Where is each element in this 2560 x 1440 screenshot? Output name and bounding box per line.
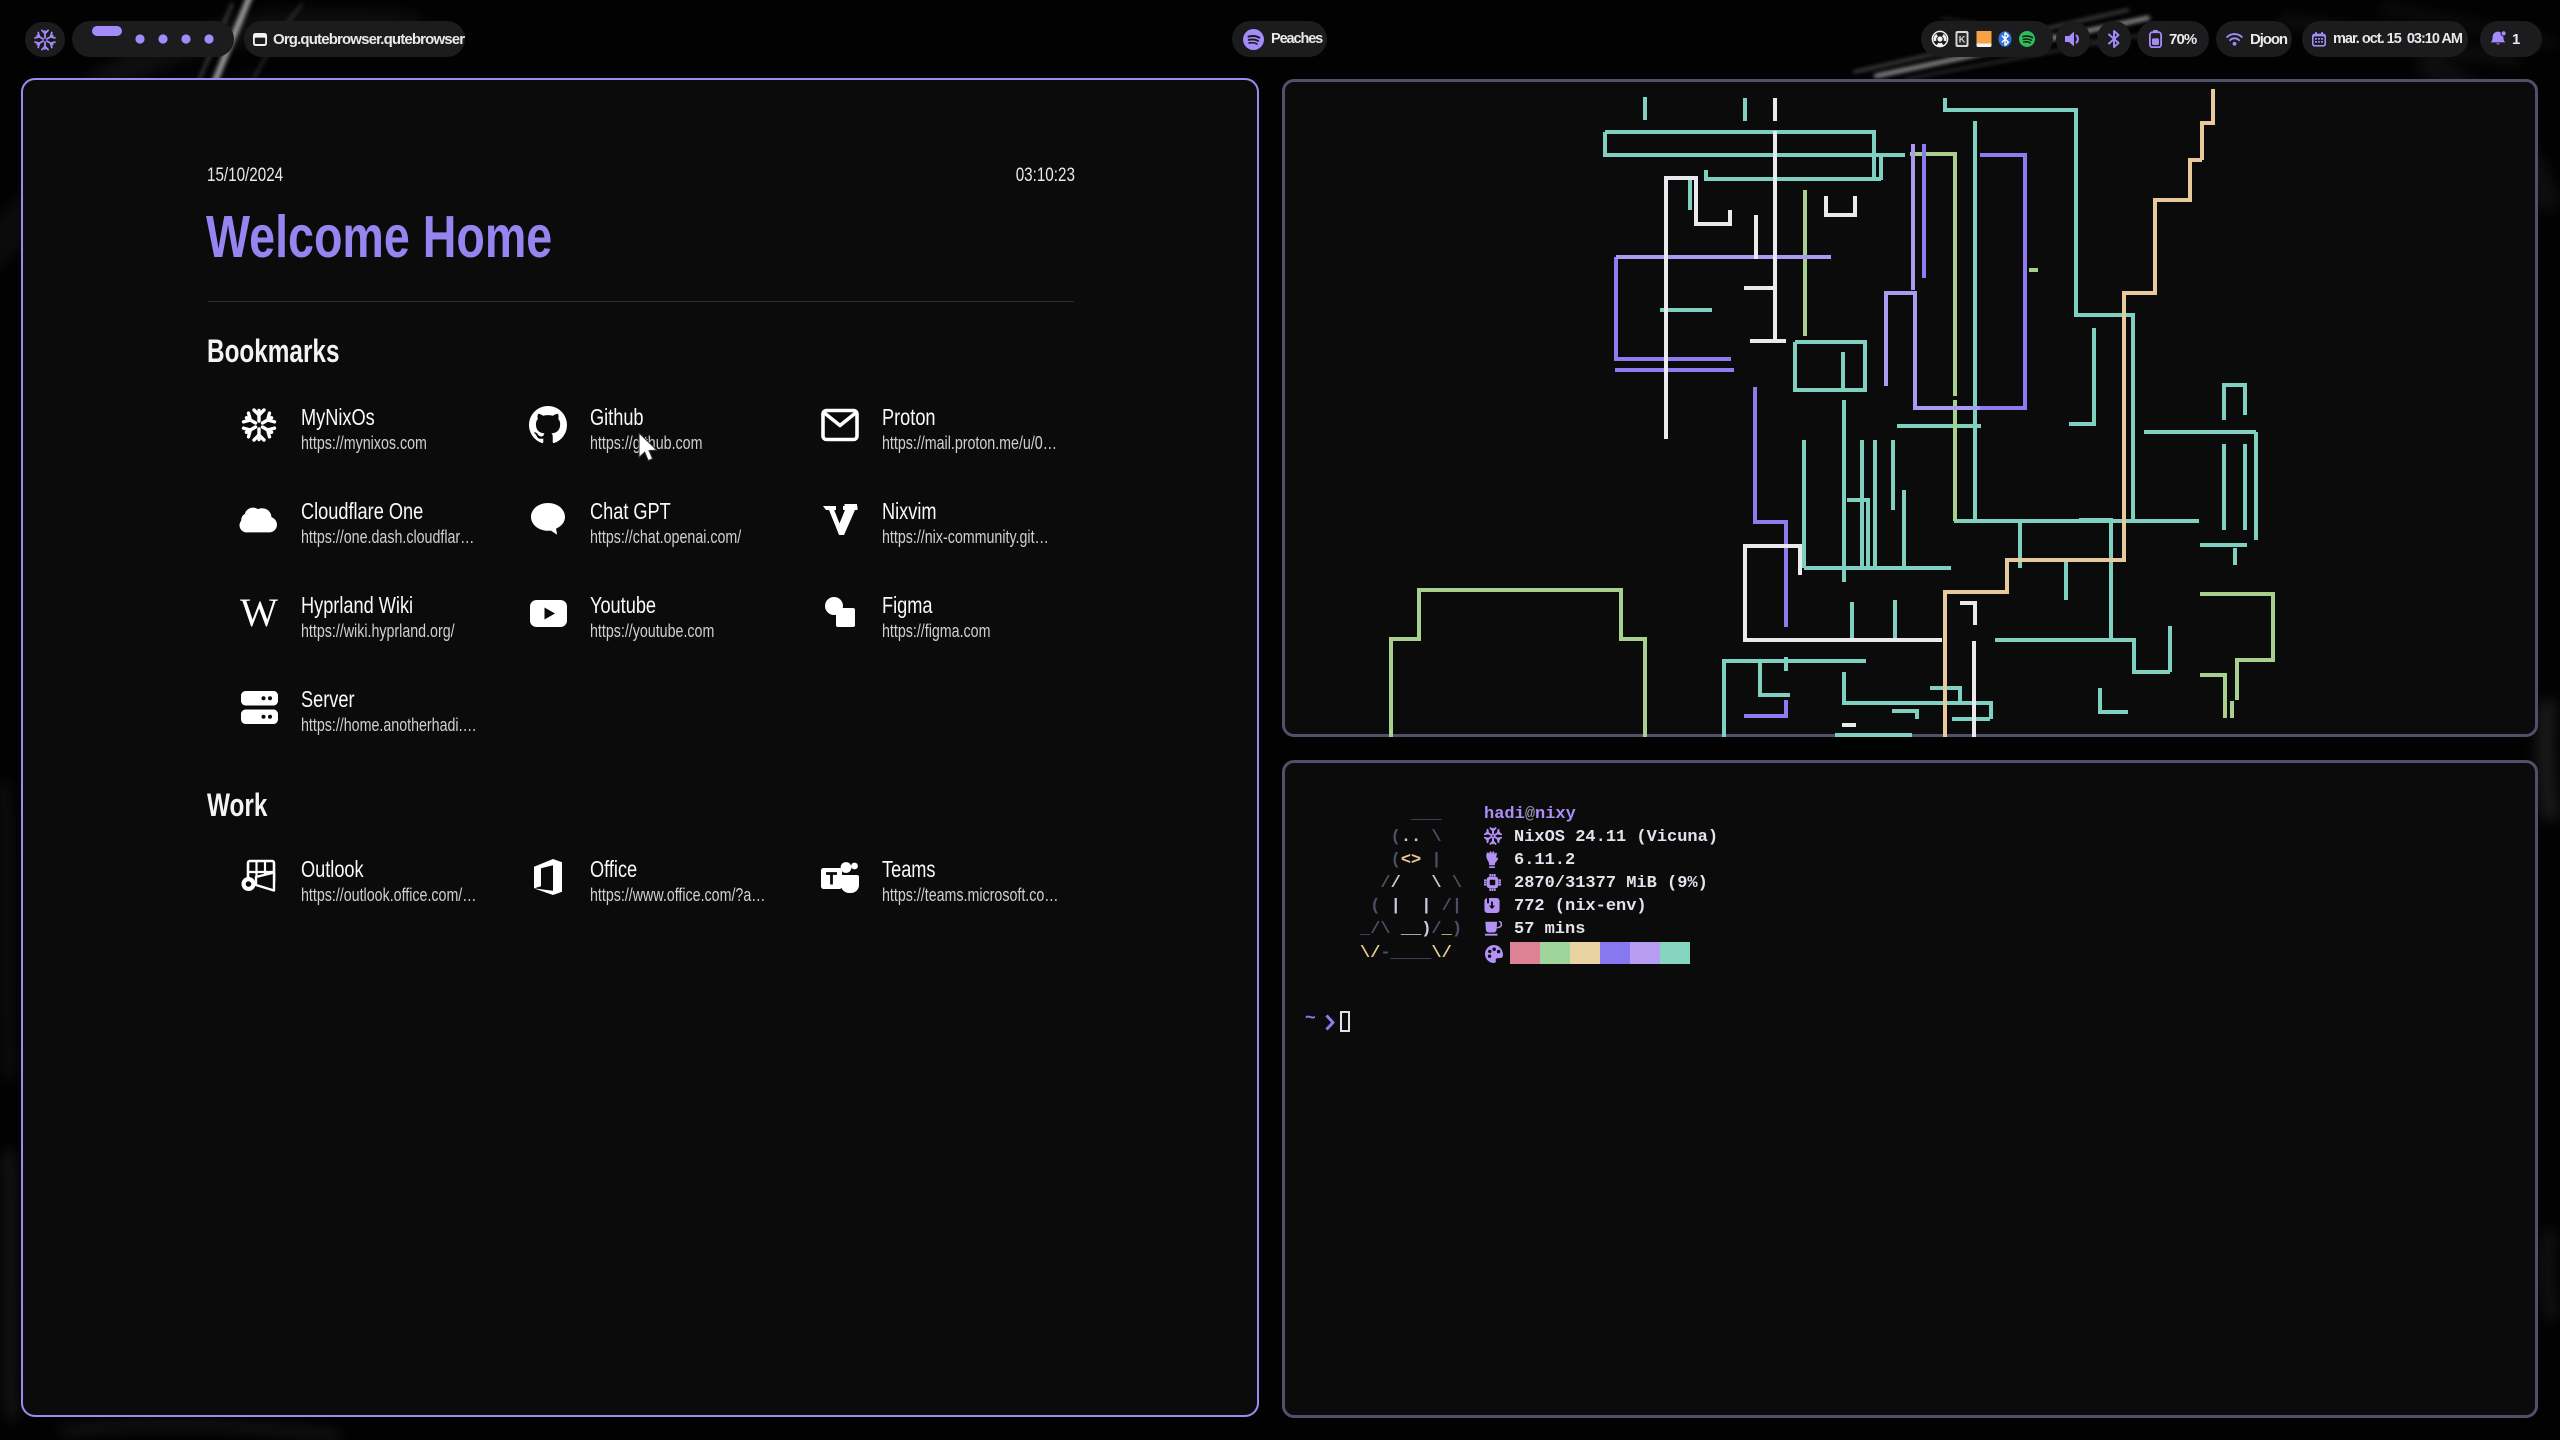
svg-text:K: K	[1959, 35, 1966, 45]
